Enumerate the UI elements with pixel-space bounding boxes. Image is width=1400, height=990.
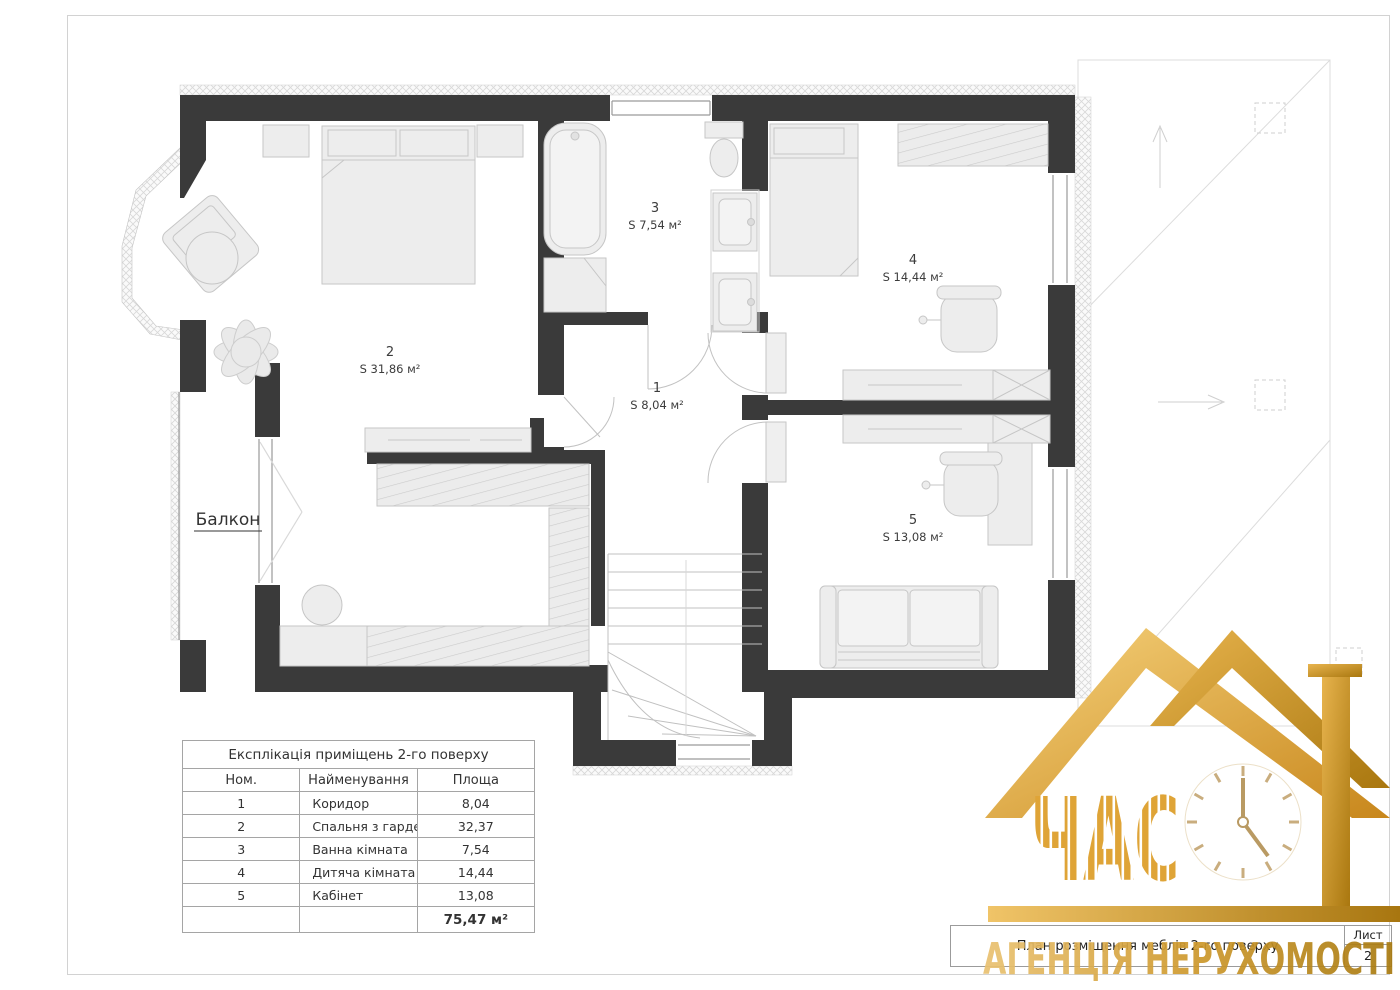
room-area: S 7,54 м² xyxy=(628,218,682,232)
side-table xyxy=(186,232,238,284)
door-bathroom xyxy=(648,325,712,389)
room-area: S 14,44 м² xyxy=(883,270,944,284)
plant xyxy=(214,320,278,384)
sofa xyxy=(820,586,998,668)
tv-dresser xyxy=(365,428,531,452)
door-room2 xyxy=(564,397,614,447)
wardrobe xyxy=(898,124,1048,166)
window-top xyxy=(612,101,710,115)
door-room5 xyxy=(708,422,786,483)
room-area: S 31,86 м² xyxy=(360,362,421,376)
bath-cabinet xyxy=(544,258,606,312)
bathtub xyxy=(544,123,606,255)
door-room4 xyxy=(708,333,786,393)
room-area: S 13,08 м² xyxy=(883,530,944,544)
pouf xyxy=(302,585,342,625)
window-balcony xyxy=(259,439,272,583)
balcony-label: Балкон xyxy=(196,510,261,530)
room-number: 3 xyxy=(651,201,659,216)
floor-plan-canvas: 2 S 31,86 м² 3 S 7,54 м² 1 S 8,04 м² 4 S… xyxy=(0,0,1400,990)
north-arrow-icon xyxy=(1153,126,1167,188)
logo-baseline-bar xyxy=(988,906,1400,922)
window-right-1 xyxy=(1053,175,1067,283)
staircase xyxy=(608,554,762,740)
sink-vanity xyxy=(711,190,759,332)
room-number: 2 xyxy=(386,345,394,360)
nightstand xyxy=(263,125,309,157)
wardrobe-shelving xyxy=(367,464,589,666)
single-bed xyxy=(770,124,858,276)
chimney-cap xyxy=(1308,664,1362,677)
desk-chair xyxy=(922,452,1002,516)
window-right-2 xyxy=(1053,469,1067,578)
wardrobe-bench xyxy=(280,626,367,666)
room-number: 5 xyxy=(909,513,917,528)
roof-window-dashed xyxy=(1255,103,1362,674)
toilet xyxy=(705,122,743,177)
window-stair xyxy=(678,745,750,759)
room-area: S 8,04 м² xyxy=(630,398,684,412)
nightstand xyxy=(477,125,523,157)
roof-small xyxy=(1150,630,1390,788)
direction-arrow-icon xyxy=(1158,395,1224,409)
logo-brand-text: ЧАС xyxy=(1030,774,1182,908)
roof-plan-overlay xyxy=(1078,60,1362,726)
logo-agency-text: АГЕНЦІЯ НЕРУХОМОСТІ xyxy=(983,934,1395,985)
balcony-casement xyxy=(260,442,302,581)
room-number: 4 xyxy=(909,253,917,268)
room-number: 1 xyxy=(653,381,661,396)
desk xyxy=(843,370,1050,400)
chimney xyxy=(1322,672,1350,908)
furniture-bedroom xyxy=(159,125,589,666)
desk-chair xyxy=(919,286,1001,352)
clock-icon xyxy=(1185,764,1301,880)
drawing-sheet: Експлікація приміщень 2-го поверху Ном. … xyxy=(0,0,1400,990)
double-bed xyxy=(322,126,475,284)
